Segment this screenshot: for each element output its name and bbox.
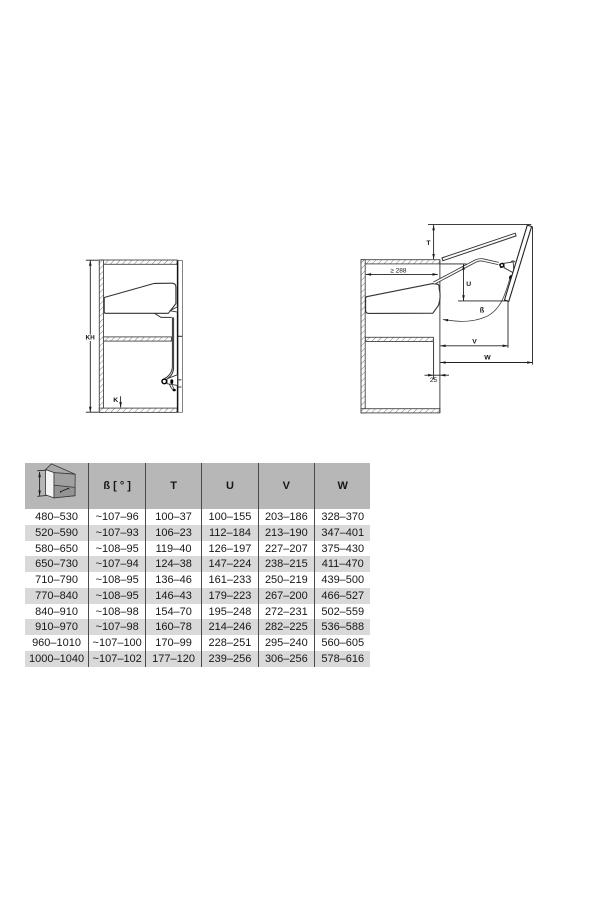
svg-text:T: T xyxy=(426,240,431,247)
svg-text:25: 25 xyxy=(430,377,438,384)
svg-text:W: W xyxy=(484,355,491,362)
svg-text:K: K xyxy=(113,397,118,404)
svg-text:U: U xyxy=(466,281,471,288)
svg-text:KH: KH xyxy=(85,335,95,342)
svg-text:≥ 288: ≥ 288 xyxy=(390,267,407,274)
svg-text:V: V xyxy=(472,338,477,345)
svg-text:ß: ß xyxy=(480,306,485,315)
